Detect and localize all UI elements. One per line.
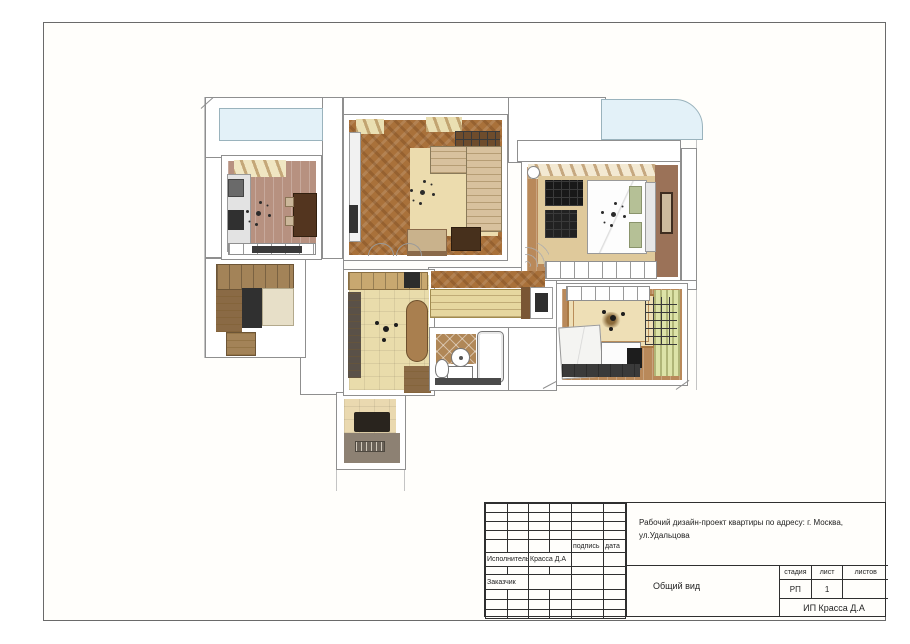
hallway-bench — [406, 300, 428, 362]
balcony-mat — [355, 441, 385, 452]
grid-row — [486, 600, 626, 610]
sheet-number: 1 — [812, 580, 844, 599]
projection-line — [336, 470, 337, 491]
sheets-header: листов — [843, 566, 888, 580]
drawing-sheet: { "title_block": { "signature_label": "п… — [0, 0, 910, 644]
grid-cell — [550, 610, 572, 619]
grid-cell — [604, 590, 626, 600]
grid-cell — [604, 553, 626, 567]
kitchen-tv-bench — [252, 246, 302, 253]
grid-cell — [604, 513, 626, 522]
bedroom-chandelier — [611, 212, 616, 217]
grid-cell — [604, 531, 626, 540]
hallway-steps — [404, 366, 431, 393]
grid-cell — [550, 600, 572, 610]
entry-dark-unit — [242, 288, 262, 328]
grid-row — [486, 522, 626, 531]
grid-cell — [529, 504, 550, 513]
entry-cabinets — [216, 264, 294, 290]
grid-row — [486, 504, 626, 513]
grid-cell — [572, 567, 604, 575]
grid-cell — [529, 590, 550, 600]
exterior-wall — [681, 148, 697, 281]
grid-cell — [572, 575, 604, 590]
grid-cell — [508, 513, 529, 522]
grid-cell — [550, 567, 572, 575]
kids-top-cabinets — [566, 286, 650, 301]
title-block-right: Рабочий дизайн-проект квартиры по адресу… — [626, 503, 888, 616]
client-row: Заказчик — [486, 575, 626, 590]
project-description: Рабочий дизайн-проект квартиры по адресу… — [627, 503, 888, 566]
grid-cell — [508, 610, 529, 619]
living-chandelier — [420, 190, 425, 195]
grid-cell — [572, 522, 604, 531]
grid-cell — [604, 610, 626, 619]
view-title: Общий вид — [627, 566, 779, 616]
coffee-table — [451, 227, 481, 251]
curtain-arcs — [525, 243, 549, 267]
grid-cell — [529, 540, 550, 553]
grid-cell — [529, 567, 550, 575]
grid-cell — [572, 553, 604, 567]
hallway-chandelier — [383, 326, 389, 332]
date-column-header: дата — [604, 540, 626, 553]
stove — [228, 210, 244, 230]
grid-cell — [508, 540, 529, 553]
grid-cell — [529, 531, 550, 540]
bathroom-counter — [435, 378, 501, 385]
executor-row: Исполнитель Красса Д.А — [486, 553, 626, 567]
kids-radiator-strip — [562, 364, 640, 377]
grid-cell — [529, 610, 550, 619]
grid-cell — [604, 504, 626, 513]
grid-cell — [572, 513, 604, 522]
grid-cell — [486, 600, 508, 610]
hallway-shelf-rack — [348, 292, 361, 378]
grid-cell — [529, 575, 572, 590]
client-label: Заказчик — [486, 575, 529, 590]
bed-headboard — [645, 182, 656, 252]
grid-cell — [508, 531, 529, 540]
dining-table — [293, 193, 317, 237]
grid-cell — [486, 567, 508, 575]
corner-sofa-side — [466, 146, 502, 232]
grid-cell — [486, 504, 508, 513]
kitchen-chandelier — [256, 211, 261, 216]
exterior-wall — [517, 140, 681, 162]
title-block-left-grid: подпись дата Исполнитель Красса Д.А Зака… — [485, 503, 626, 619]
grid-cell — [486, 540, 508, 553]
grid-row — [486, 610, 626, 619]
grid-row — [486, 513, 626, 522]
grid-cell — [550, 504, 572, 513]
interior-wall — [300, 258, 344, 395]
corridor-niche-unit — [535, 293, 548, 312]
grid-cell — [508, 600, 529, 610]
window-glazing-band — [219, 108, 323, 141]
executor-name: Красса Д.А — [529, 553, 572, 567]
grid-row: подпись дата — [486, 540, 626, 553]
grid-cell — [508, 504, 529, 513]
corridor-wardrobe — [430, 289, 522, 318]
executor-label: Исполнитель — [486, 553, 529, 567]
grid-cell — [529, 600, 550, 610]
ottoman — [545, 210, 577, 238]
bedroom-radiator — [545, 261, 657, 279]
grid-cell — [604, 600, 626, 610]
fridge — [228, 179, 244, 197]
tv-screen — [349, 205, 358, 233]
kids-chandelier — [610, 315, 616, 321]
ceiling-lamp — [527, 166, 540, 179]
grid-cell — [550, 522, 572, 531]
grid-cell — [486, 522, 508, 531]
grid-cell — [572, 600, 604, 610]
projection-line — [404, 470, 405, 491]
grid-cell — [486, 531, 508, 540]
grid-cell — [486, 590, 508, 600]
grid-cell — [572, 610, 604, 619]
toilet — [435, 359, 449, 378]
entry-wardrobe — [216, 290, 242, 332]
signature-column-header: подпись — [572, 540, 604, 553]
grid-row — [486, 531, 626, 540]
company-name: ИП Красса Д.А — [780, 599, 888, 616]
grid-cell — [550, 540, 572, 553]
living-curtain — [426, 117, 462, 132]
hallway-dark-console — [404, 272, 420, 288]
grid-cell — [550, 590, 572, 600]
stage-header: стадия — [780, 566, 812, 580]
grid-cell — [572, 531, 604, 540]
entry-counter — [262, 288, 294, 326]
sheet-header: лист — [812, 566, 844, 580]
grid-cell — [572, 504, 604, 513]
grid-row — [486, 590, 626, 600]
grid-cell — [572, 590, 604, 600]
bed-pillow — [629, 186, 642, 214]
sheets-total — [843, 580, 888, 599]
interior-wall — [508, 327, 557, 391]
grid-cell — [604, 522, 626, 531]
grid-cell — [508, 522, 529, 531]
bed-pillow — [629, 222, 642, 248]
kids-shelf-grid — [645, 297, 677, 345]
grid-cell — [529, 513, 550, 522]
grid-cell — [604, 567, 626, 575]
stage-value: РП — [780, 580, 812, 599]
washer-door — [459, 356, 463, 360]
ottoman — [545, 180, 583, 206]
grid-cell — [486, 513, 508, 522]
corridor-floor — [431, 271, 545, 288]
grid-cell — [529, 522, 550, 531]
grid-cell — [508, 567, 529, 575]
grid-row — [486, 567, 626, 575]
corridor-wardrobe-end — [521, 287, 530, 319]
wall-mirror — [660, 192, 673, 234]
bathtub — [477, 331, 504, 383]
interior-wall — [322, 97, 343, 259]
dining-chair — [285, 197, 294, 207]
window-glazing-band — [601, 99, 703, 140]
entry-lower-cabinet — [226, 332, 256, 356]
grid-cell — [508, 590, 529, 600]
grid-cell — [486, 610, 508, 619]
grid-cell — [550, 531, 572, 540]
grid-cell — [550, 513, 572, 522]
dining-chair — [285, 216, 294, 226]
balcony-bench — [354, 412, 390, 432]
stage-sheet-table: стадия лист листов РП 1 ИП Красса Д.А — [779, 566, 888, 616]
grid-cell — [604, 575, 626, 590]
title-block: подпись дата Исполнитель Красса Д.А Зака… — [484, 502, 886, 617]
